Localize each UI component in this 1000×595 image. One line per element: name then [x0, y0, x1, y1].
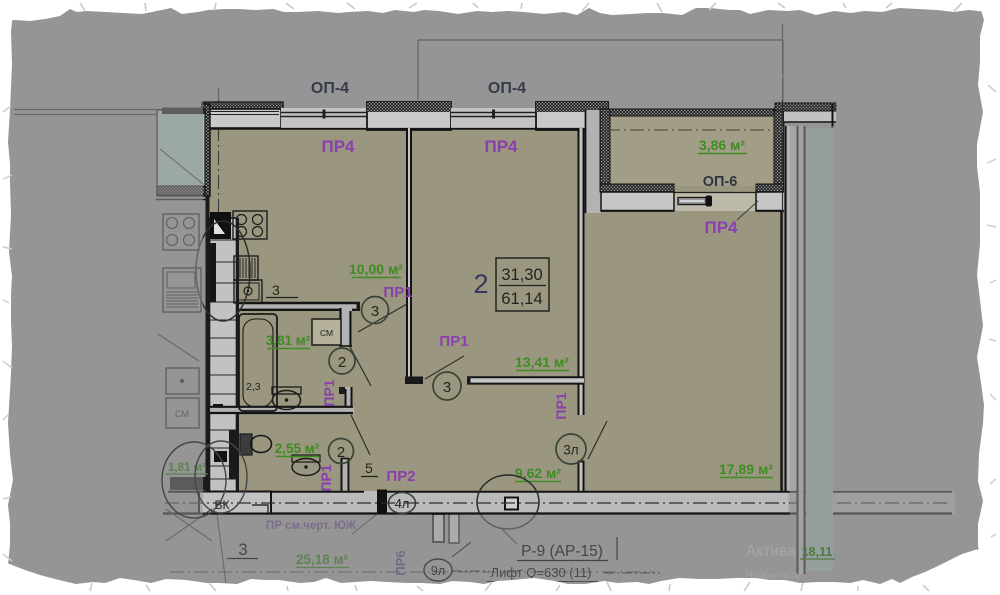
svg-text:25,18 м²: 25,18 м² [296, 552, 349, 567]
svg-text:ОП-6: ОП-6 [703, 174, 738, 190]
svg-text:5: 5 [365, 460, 373, 476]
svg-text:2,3: 2,3 [246, 381, 261, 393]
svg-text:СМ: СМ [320, 328, 333, 338]
svg-text:13,41 м²: 13,41 м² [515, 354, 569, 370]
svg-text:Актива: Актива [746, 543, 796, 560]
svg-text:3: 3 [443, 379, 451, 396]
svg-text:ПР2: ПР2 [386, 468, 415, 485]
svg-text:3,86 м²: 3,86 м² [699, 137, 745, 153]
svg-text:ПР1: ПР1 [383, 284, 412, 301]
svg-text:ПР4: ПР4 [321, 137, 355, 156]
svg-text:9л: 9л [431, 564, 445, 578]
svg-text:17,89 м²: 17,89 м² [719, 461, 773, 477]
svg-text:3: 3 [371, 303, 379, 320]
svg-text:Лифт Q=630 (11): Лифт Q=630 (11) [491, 565, 592, 580]
svg-text:3: 3 [272, 282, 280, 298]
svg-text:1,81 м²: 1,81 м² [168, 462, 206, 474]
svg-text:2: 2 [473, 269, 488, 299]
svg-text:ПР1: ПР1 [553, 392, 569, 419]
svg-text:ПР6: ПР6 [393, 550, 408, 575]
svg-text:ПР4: ПР4 [704, 218, 738, 237]
svg-text:ПР см.черт. ЮЖ: ПР см.черт. ЮЖ [266, 520, 357, 532]
svg-text:18,11: 18,11 [802, 545, 833, 559]
svg-text:3л: 3л [563, 443, 578, 458]
svg-text:10,00 м²: 10,00 м² [349, 261, 403, 277]
svg-text:2,55 м²: 2,55 м² [275, 441, 320, 456]
svg-text:ПР4: ПР4 [484, 137, 518, 156]
svg-text:2: 2 [338, 354, 346, 371]
svg-text:61,14: 61,14 [501, 290, 542, 308]
svg-text:9,62 м²: 9,62 м² [515, 465, 561, 481]
svg-text:ПР1: ПР1 [321, 379, 337, 406]
svg-text:ПР1: ПР1 [318, 464, 334, 491]
svg-text:ОП-4: ОП-4 [311, 80, 349, 97]
svg-text:3: 3 [238, 540, 247, 559]
svg-text:2: 2 [337, 444, 345, 461]
svg-text:ОП-4: ОП-4 [488, 80, 526, 97]
svg-text:Р-9 (АР-15): Р-9 (АР-15) [521, 543, 603, 560]
svg-text:31,30: 31,30 [501, 266, 542, 284]
svg-text:3,81 м²: 3,81 м² [266, 333, 311, 348]
svg-text:ПР1: ПР1 [439, 333, 468, 350]
